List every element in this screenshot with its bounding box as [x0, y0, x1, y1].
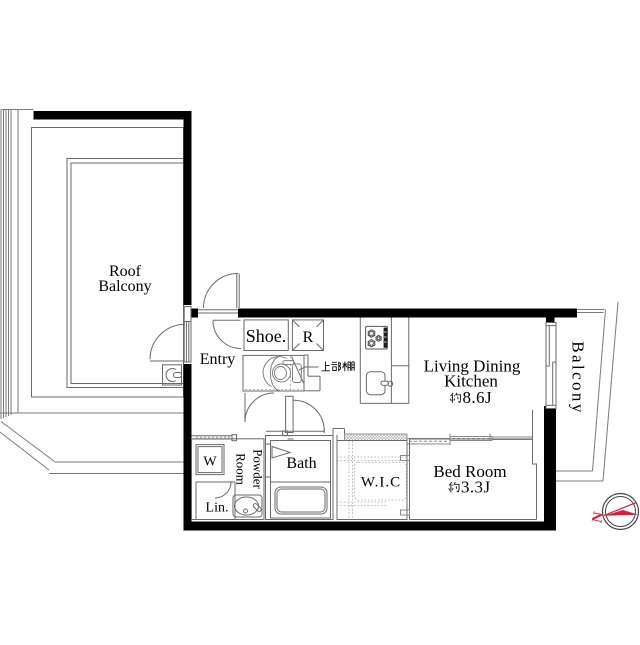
svg-text:Shoe.: Shoe. [246, 326, 287, 346]
svg-text:Entry: Entry [200, 351, 236, 368]
svg-text:W: W [203, 455, 217, 470]
svg-text:Balcony: Balcony [98, 278, 151, 295]
svg-text:Powder: Powder [251, 449, 266, 489]
svg-text:W.I.C: W.I.C [361, 475, 401, 491]
svg-text:R: R [303, 329, 314, 346]
svg-text:8.6J: 8.6J [463, 388, 492, 407]
svg-text:3.3J: 3.3J [461, 478, 490, 497]
svg-text:Bath: Bath [286, 455, 316, 472]
svg-text:Lin.: Lin. [206, 501, 229, 516]
svg-text:Room: Room [234, 453, 249, 485]
svg-text:Balcony: Balcony [569, 341, 588, 414]
